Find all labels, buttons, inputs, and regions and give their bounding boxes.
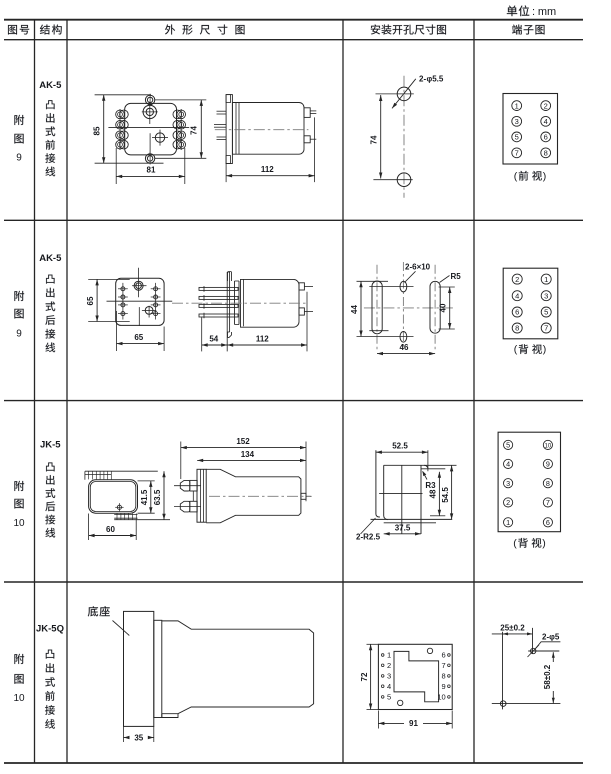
svg-text:3: 3 bbox=[544, 291, 548, 300]
svg-text:AK-5: AK-5 bbox=[39, 253, 62, 264]
svg-text:8: 8 bbox=[515, 324, 519, 333]
svg-text:4: 4 bbox=[387, 682, 391, 691]
svg-text:9: 9 bbox=[16, 153, 22, 164]
svg-text::: : bbox=[532, 6, 535, 18]
svg-text:mm: mm bbox=[538, 6, 556, 18]
svg-text:4: 4 bbox=[515, 291, 519, 300]
svg-text:52.5: 52.5 bbox=[392, 442, 408, 451]
svg-text:74: 74 bbox=[190, 126, 199, 135]
svg-text:φ5.5: φ5.5 bbox=[427, 75, 444, 84]
svg-text:35: 35 bbox=[134, 733, 143, 742]
svg-text:65: 65 bbox=[134, 333, 143, 342]
svg-text:1: 1 bbox=[387, 651, 391, 660]
svg-text:6: 6 bbox=[544, 133, 548, 142]
svg-text:5: 5 bbox=[515, 133, 519, 142]
svg-text:8: 8 bbox=[544, 149, 548, 158]
svg-text:2-: 2- bbox=[419, 75, 426, 84]
svg-text:JK-5Q: JK-5Q bbox=[36, 624, 64, 635]
svg-text:7: 7 bbox=[544, 324, 548, 333]
svg-text:152: 152 bbox=[236, 437, 250, 446]
svg-text:65: 65 bbox=[86, 296, 95, 305]
svg-text:7: 7 bbox=[442, 661, 446, 670]
svg-text:): ) bbox=[543, 344, 547, 356]
svg-text:44: 44 bbox=[350, 305, 359, 314]
svg-text:134: 134 bbox=[241, 450, 255, 459]
svg-text:9: 9 bbox=[442, 682, 446, 691]
svg-text:6: 6 bbox=[515, 308, 519, 317]
svg-text:25±0.2: 25±0.2 bbox=[500, 624, 525, 633]
svg-text:37.5: 37.5 bbox=[395, 524, 411, 533]
svg-text:10: 10 bbox=[545, 444, 552, 450]
svg-text:74: 74 bbox=[370, 135, 379, 144]
svg-text:5: 5 bbox=[387, 693, 391, 702]
svg-text:10: 10 bbox=[13, 518, 25, 529]
svg-text:3: 3 bbox=[515, 117, 519, 126]
svg-text:2: 2 bbox=[506, 498, 510, 507]
svg-text:R3: R3 bbox=[425, 481, 436, 490]
svg-text:9: 9 bbox=[16, 329, 22, 340]
svg-text:2-6×10: 2-6×10 bbox=[405, 262, 431, 271]
svg-text:91: 91 bbox=[409, 719, 418, 728]
svg-text:81: 81 bbox=[147, 165, 156, 174]
svg-text:AK-5: AK-5 bbox=[39, 80, 62, 91]
svg-text:(: ( bbox=[513, 537, 517, 549]
svg-text:3: 3 bbox=[387, 672, 391, 681]
svg-text:2-R2.5: 2-R2.5 bbox=[356, 532, 381, 541]
svg-text:112: 112 bbox=[256, 334, 269, 343]
svg-text:8: 8 bbox=[442, 672, 446, 681]
svg-text:2: 2 bbox=[387, 661, 391, 670]
svg-text:R5: R5 bbox=[451, 272, 462, 281]
svg-text:6: 6 bbox=[546, 518, 550, 527]
svg-text:8: 8 bbox=[546, 479, 550, 488]
svg-text:5: 5 bbox=[544, 308, 548, 317]
svg-text:1: 1 bbox=[515, 101, 519, 110]
svg-text:4: 4 bbox=[506, 460, 510, 469]
svg-text:63.5: 63.5 bbox=[153, 489, 162, 505]
svg-text:40: 40 bbox=[439, 303, 448, 312]
svg-text:(: ( bbox=[514, 170, 518, 182]
svg-text:1: 1 bbox=[544, 275, 548, 284]
svg-text:): ) bbox=[542, 537, 546, 549]
svg-text:54: 54 bbox=[209, 334, 218, 343]
svg-text:9: 9 bbox=[546, 460, 550, 469]
svg-text:3: 3 bbox=[506, 479, 510, 488]
svg-text:5: 5 bbox=[506, 441, 510, 450]
svg-text:72: 72 bbox=[360, 672, 369, 681]
svg-text:): ) bbox=[543, 170, 547, 182]
svg-text:112: 112 bbox=[261, 165, 274, 174]
svg-text:60: 60 bbox=[106, 525, 115, 534]
svg-text:48: 48 bbox=[429, 489, 438, 498]
svg-text:10: 10 bbox=[437, 693, 445, 702]
svg-text:2: 2 bbox=[515, 275, 519, 284]
svg-text:4: 4 bbox=[544, 117, 548, 126]
svg-text:6: 6 bbox=[442, 651, 446, 660]
svg-text:46: 46 bbox=[400, 343, 409, 352]
svg-text:41.5: 41.5 bbox=[140, 489, 149, 505]
svg-text:10: 10 bbox=[13, 693, 25, 704]
svg-text:2: 2 bbox=[544, 101, 548, 110]
svg-text:58±0.2: 58±0.2 bbox=[543, 664, 552, 689]
svg-text:54.5: 54.5 bbox=[441, 487, 450, 503]
svg-text:(: ( bbox=[514, 344, 518, 356]
svg-text:85: 85 bbox=[92, 126, 101, 135]
svg-text:7: 7 bbox=[515, 149, 519, 158]
svg-text:JK-5: JK-5 bbox=[40, 440, 61, 451]
svg-text:7: 7 bbox=[546, 498, 550, 507]
svg-text:2-φ5: 2-φ5 bbox=[542, 633, 560, 642]
svg-text:1: 1 bbox=[506, 518, 510, 527]
